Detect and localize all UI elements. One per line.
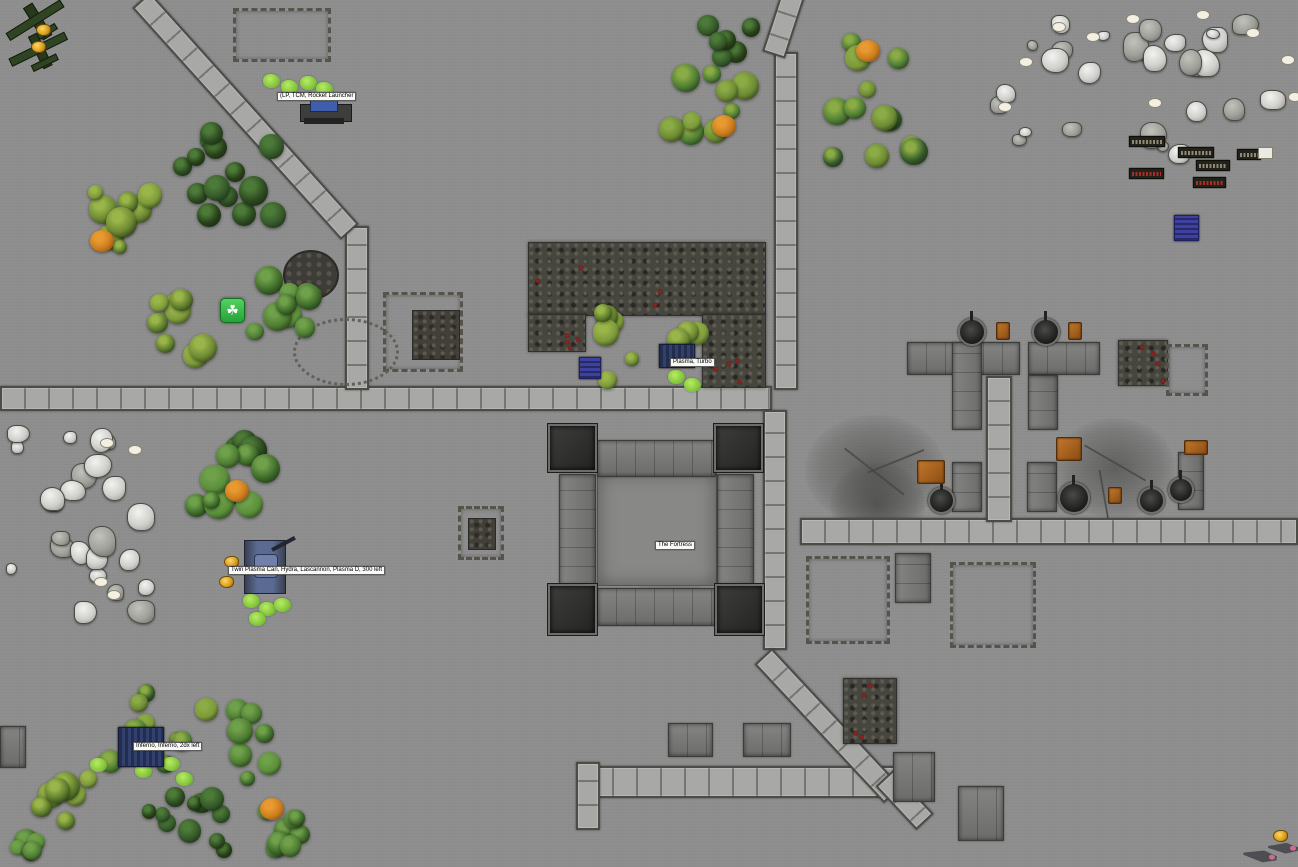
ruined-building	[950, 562, 1036, 648]
rock	[74, 601, 98, 624]
small-white-rock	[1281, 55, 1295, 65]
gun-emplacement	[1032, 318, 1060, 346]
tree	[57, 812, 75, 830]
building	[952, 342, 982, 430]
tree	[823, 147, 843, 167]
road-segment	[763, 410, 787, 650]
building	[597, 440, 716, 477]
rubble-red-debris	[860, 735, 864, 739]
objective-gold-marker[interactable]	[36, 24, 51, 36]
supply-crate	[1056, 437, 1082, 461]
rock	[84, 454, 111, 478]
supply-crate	[917, 460, 945, 484]
tree	[276, 294, 297, 315]
token-label[interactable]: (LP, TCM, Rocket Launcher	[277, 92, 356, 101]
status-white-chip[interactable]	[1258, 147, 1273, 159]
tree	[865, 144, 889, 168]
growth-status-icon[interactable]: ☘	[220, 298, 245, 323]
tree	[716, 80, 738, 102]
lime-bush	[163, 757, 180, 771]
road-segment	[0, 386, 772, 411]
road-segment	[774, 52, 798, 390]
rock	[1041, 48, 1068, 73]
rubble-red-debris	[1151, 352, 1155, 356]
blue-vehicle-token[interactable]	[1174, 215, 1199, 241]
artillery-wheels	[304, 118, 344, 124]
tree	[240, 771, 255, 786]
small-white-rock	[1288, 92, 1298, 102]
lime-bush	[684, 378, 701, 392]
unit-name-plate-text	[1132, 140, 1162, 144]
objective-gold-marker[interactable]	[219, 576, 234, 588]
token-label[interactable]: Twin Plasma Can, Hydra, Lascannon, Plasm…	[228, 566, 385, 575]
rock	[1260, 90, 1285, 109]
tree	[155, 807, 170, 822]
rock	[1027, 40, 1038, 51]
tree	[147, 313, 168, 334]
blue-vehicle-token[interactable]	[579, 357, 601, 379]
rubble-red-debris	[568, 346, 572, 350]
objective-gold-marker[interactable]	[31, 41, 46, 53]
token-label[interactable]: Inferno, Inferno, 2dx left	[133, 742, 202, 751]
building	[893, 752, 935, 802]
rubble-red-debris	[862, 694, 866, 698]
tree	[142, 804, 156, 818]
building	[743, 723, 791, 757]
building	[559, 474, 596, 586]
gun-barrel	[1150, 480, 1153, 490]
rock	[1206, 29, 1219, 39]
tree-autumn-orange	[225, 480, 249, 502]
rock	[102, 476, 126, 501]
rock	[40, 487, 65, 511]
gun-emplacement	[928, 487, 955, 514]
road-segment	[576, 762, 600, 830]
rubble-red-debris	[576, 338, 580, 342]
rock	[127, 503, 156, 531]
rubble-red-debris	[536, 279, 540, 283]
rock	[138, 579, 155, 596]
tree	[200, 787, 224, 811]
unit-name-plate-text	[1196, 181, 1223, 185]
building	[895, 553, 931, 603]
unit-name-plate[interactable]	[1178, 147, 1214, 158]
tree	[246, 323, 264, 341]
small-white-rock	[1086, 32, 1100, 42]
building	[717, 474, 754, 586]
tree	[227, 718, 253, 744]
tree	[150, 294, 168, 312]
unit-name-plate[interactable]	[1129, 168, 1164, 179]
tree	[295, 317, 316, 338]
gun-emplacement	[1168, 477, 1194, 503]
fortress-courtyard	[597, 472, 717, 586]
tree	[239, 176, 268, 205]
small-white-rock	[998, 102, 1012, 112]
rock	[63, 431, 77, 445]
tree	[195, 698, 218, 721]
gun-emplacement	[1058, 482, 1090, 514]
rubble-red-debris	[714, 367, 718, 371]
token-label[interactable]: The Fortress	[655, 541, 695, 550]
unit-name-plate[interactable]	[1196, 160, 1230, 171]
rock	[1139, 19, 1162, 42]
tree	[255, 724, 274, 743]
building	[597, 588, 716, 626]
rubble-red-debris	[579, 266, 583, 270]
rock	[1019, 127, 1032, 137]
tree-autumn-orange	[90, 230, 114, 252]
tree-autumn-orange	[856, 40, 880, 62]
small-white-rock	[128, 445, 142, 455]
rubble-red-debris	[658, 290, 662, 294]
tree	[659, 117, 684, 142]
fortress-corner-tower	[548, 584, 597, 635]
tree	[251, 454, 281, 484]
lime-bush	[90, 758, 107, 772]
tree	[296, 284, 322, 310]
small-white-rock	[1126, 14, 1140, 24]
tree	[178, 819, 202, 843]
building	[958, 786, 1004, 841]
unit-name-plate-text	[1240, 153, 1258, 157]
lime-bush	[176, 772, 193, 786]
supply-crate	[1108, 487, 1122, 504]
game-map[interactable]: ☘(LP, TCM, Rocket LauncherPlasma, TurboT…	[0, 0, 1298, 867]
tree	[229, 743, 252, 766]
tree	[165, 787, 185, 807]
tree	[703, 65, 720, 82]
rubble-red-debris	[565, 340, 569, 344]
tree	[204, 175, 229, 200]
rock	[127, 600, 155, 624]
road-segment	[800, 518, 1298, 545]
rock	[6, 563, 17, 574]
unit-name-plate-text	[1199, 164, 1227, 168]
tree	[900, 138, 928, 166]
tree	[859, 81, 876, 98]
small-white-rock	[1052, 22, 1066, 32]
gun-barrel	[970, 311, 973, 321]
rock	[119, 549, 140, 572]
building	[0, 726, 26, 768]
rock	[7, 425, 30, 443]
rock	[51, 531, 70, 546]
rock	[1164, 34, 1185, 52]
tree	[255, 266, 284, 295]
tree	[225, 162, 246, 183]
fortress-corner-tower	[714, 424, 763, 472]
rubble-wall	[843, 678, 897, 744]
unit-name-plate-text	[1181, 151, 1211, 155]
tree	[672, 64, 699, 91]
gun-emplacement	[958, 318, 986, 346]
small-white-rock	[100, 438, 114, 448]
rubble-wall	[528, 314, 586, 352]
tree	[232, 202, 256, 226]
lime-bush	[300, 76, 317, 90]
tree	[258, 752, 281, 775]
tree	[170, 289, 192, 311]
gun-barrel	[1179, 470, 1182, 480]
small-white-rock	[94, 577, 108, 587]
rock	[1223, 98, 1245, 122]
rock	[996, 84, 1017, 103]
unit-name-plate[interactable]	[1193, 177, 1226, 188]
lime-bush	[274, 598, 291, 612]
tree	[280, 835, 302, 857]
tree	[593, 319, 619, 345]
tree-autumn-orange	[260, 798, 284, 820]
tree	[742, 18, 761, 37]
rock	[1186, 101, 1206, 122]
building	[1028, 342, 1100, 375]
small-white-rock	[107, 590, 121, 600]
rubble-red-debris	[565, 333, 569, 337]
rubble-red-debris	[854, 731, 858, 735]
small-white-rock	[1196, 10, 1210, 20]
tree	[259, 134, 284, 159]
tree	[189, 334, 217, 362]
small-white-rock	[1148, 98, 1162, 108]
rubble-red-debris	[735, 359, 739, 363]
gun-barrel	[1072, 475, 1075, 485]
rock	[88, 526, 116, 557]
unit-name-plate[interactable]	[1129, 136, 1165, 147]
building	[952, 462, 982, 512]
ruined-building	[233, 8, 331, 62]
lime-bush	[263, 74, 280, 88]
gun-barrel	[1044, 311, 1047, 321]
building	[1028, 375, 1058, 430]
jet-token[interactable]	[1267, 838, 1298, 858]
road-segment-diagonal	[762, 0, 806, 59]
lime-bush	[243, 594, 260, 608]
ruined-building	[1166, 344, 1208, 396]
unit-name-plate-text	[1132, 172, 1161, 176]
ruined-building	[806, 556, 890, 644]
rubble-wall	[1118, 340, 1168, 386]
tree	[683, 112, 702, 131]
rock	[1143, 45, 1167, 72]
tree	[625, 352, 639, 366]
tree	[130, 694, 148, 712]
rubble-red-debris	[868, 684, 872, 688]
tree	[45, 778, 69, 802]
ruin-rubble-core	[468, 518, 496, 550]
tree	[260, 202, 286, 228]
building	[668, 723, 713, 757]
rubble-red-debris	[738, 380, 742, 384]
rock	[1179, 49, 1203, 76]
supply-crate	[1184, 440, 1208, 455]
token-label[interactable]: Plasma, Turbo	[670, 358, 715, 367]
tree	[156, 334, 175, 353]
tree	[288, 810, 305, 827]
tree	[23, 841, 42, 860]
ruin-rubble-core	[412, 310, 460, 360]
rubble-red-debris	[727, 362, 731, 366]
fortress-corner-tower	[715, 584, 764, 635]
supply-crate	[1068, 322, 1082, 340]
tree	[80, 770, 97, 787]
lime-bush	[249, 612, 266, 626]
tree	[138, 183, 163, 208]
small-white-rock	[1019, 57, 1033, 67]
supply-crate	[996, 322, 1010, 340]
rubble-red-debris	[1140, 345, 1144, 349]
tree-autumn-orange	[712, 115, 736, 137]
tree	[216, 444, 240, 468]
tree	[197, 203, 221, 227]
tree	[888, 48, 909, 69]
fortress-corner-tower	[548, 424, 597, 472]
rubble-wall	[528, 242, 766, 316]
rubble-red-debris	[1161, 379, 1165, 383]
tree	[209, 833, 225, 849]
rubble-red-debris	[653, 303, 657, 307]
rubble-red-debris	[1156, 362, 1160, 366]
rock	[1062, 122, 1081, 137]
small-white-rock	[1246, 28, 1260, 38]
lime-bush	[668, 370, 685, 384]
tree	[187, 148, 205, 166]
tree	[113, 240, 127, 254]
road-segment	[986, 376, 1012, 522]
rubble-wall	[702, 314, 766, 388]
tree	[844, 97, 866, 119]
gun-emplacement	[1138, 487, 1165, 514]
building	[1027, 462, 1057, 512]
rock	[1078, 62, 1100, 84]
